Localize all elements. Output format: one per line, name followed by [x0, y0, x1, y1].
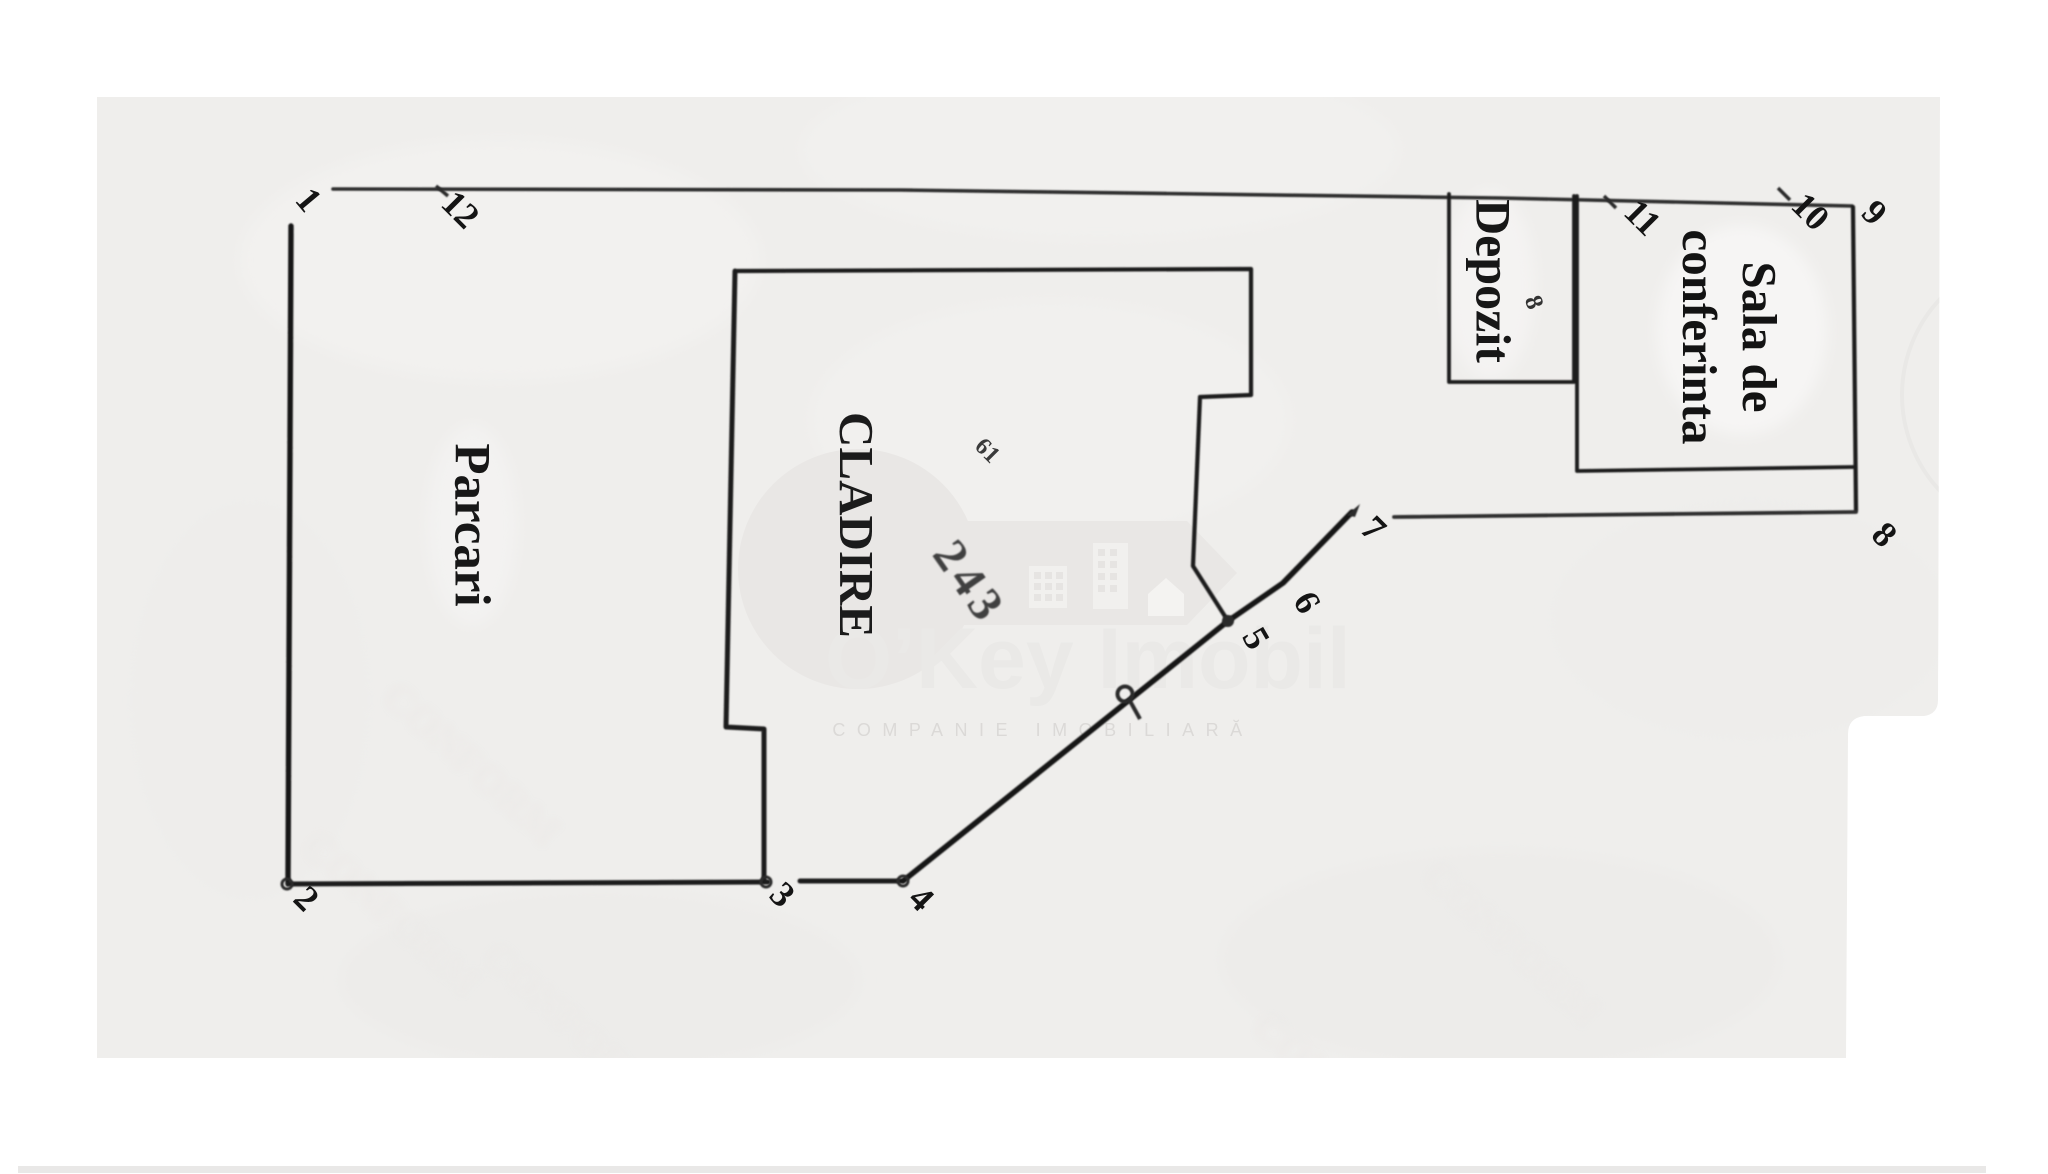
svg-text:Sala de: Sala de	[1732, 261, 1787, 412]
svg-text:conferinta: conferinta	[1672, 230, 1727, 445]
svg-text:Parcari: Parcari	[443, 443, 499, 606]
svg-text:COMPANIE IMOBILIARĂ: COMPANIE IMOBILIARĂ	[832, 720, 1253, 740]
svg-text:CLADIRE: CLADIRE	[829, 412, 884, 638]
svg-text:Depozit: Depozit	[1466, 199, 1522, 363]
